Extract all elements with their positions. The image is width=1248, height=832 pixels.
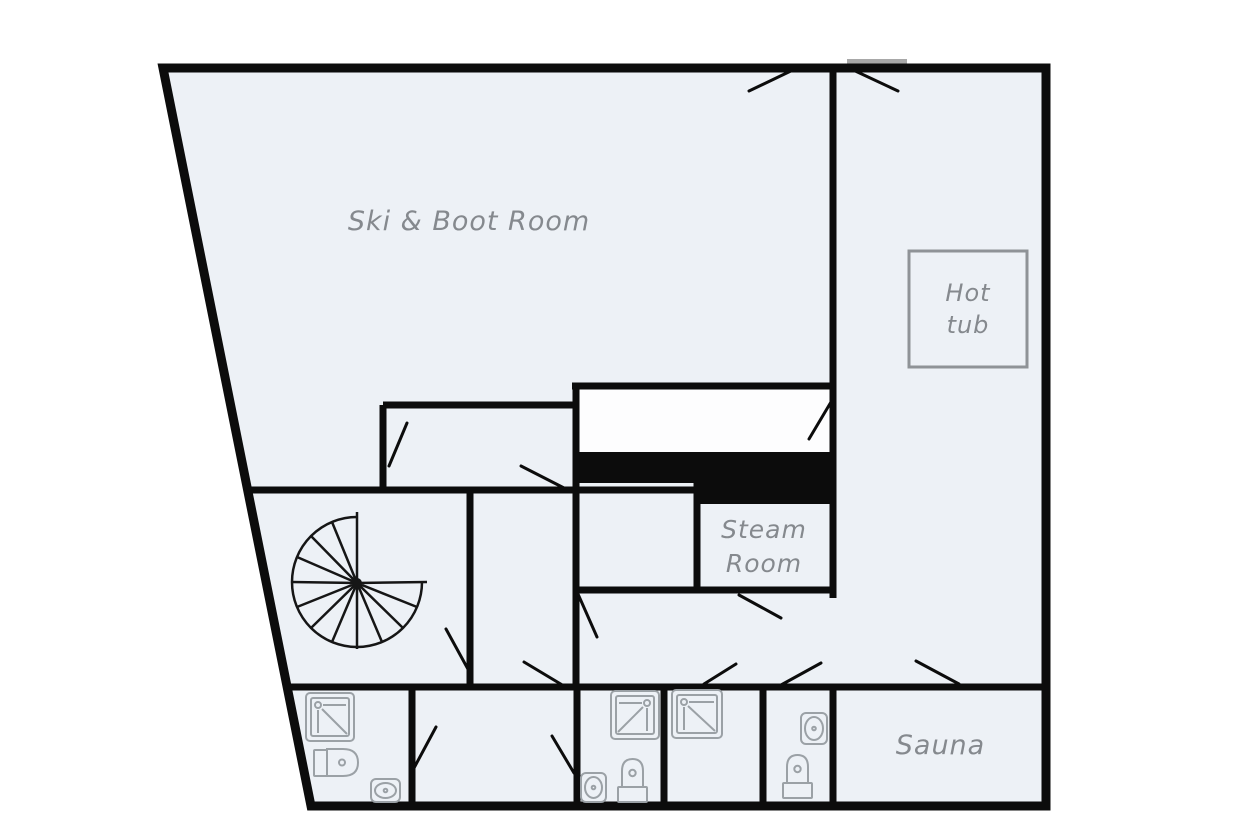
floor-plan-drawing xyxy=(0,0,1248,832)
closet-room xyxy=(576,386,832,452)
floor-plan-canvas: Ski & Boot Room Hot tub Steam Room Sauna xyxy=(0,0,1248,832)
